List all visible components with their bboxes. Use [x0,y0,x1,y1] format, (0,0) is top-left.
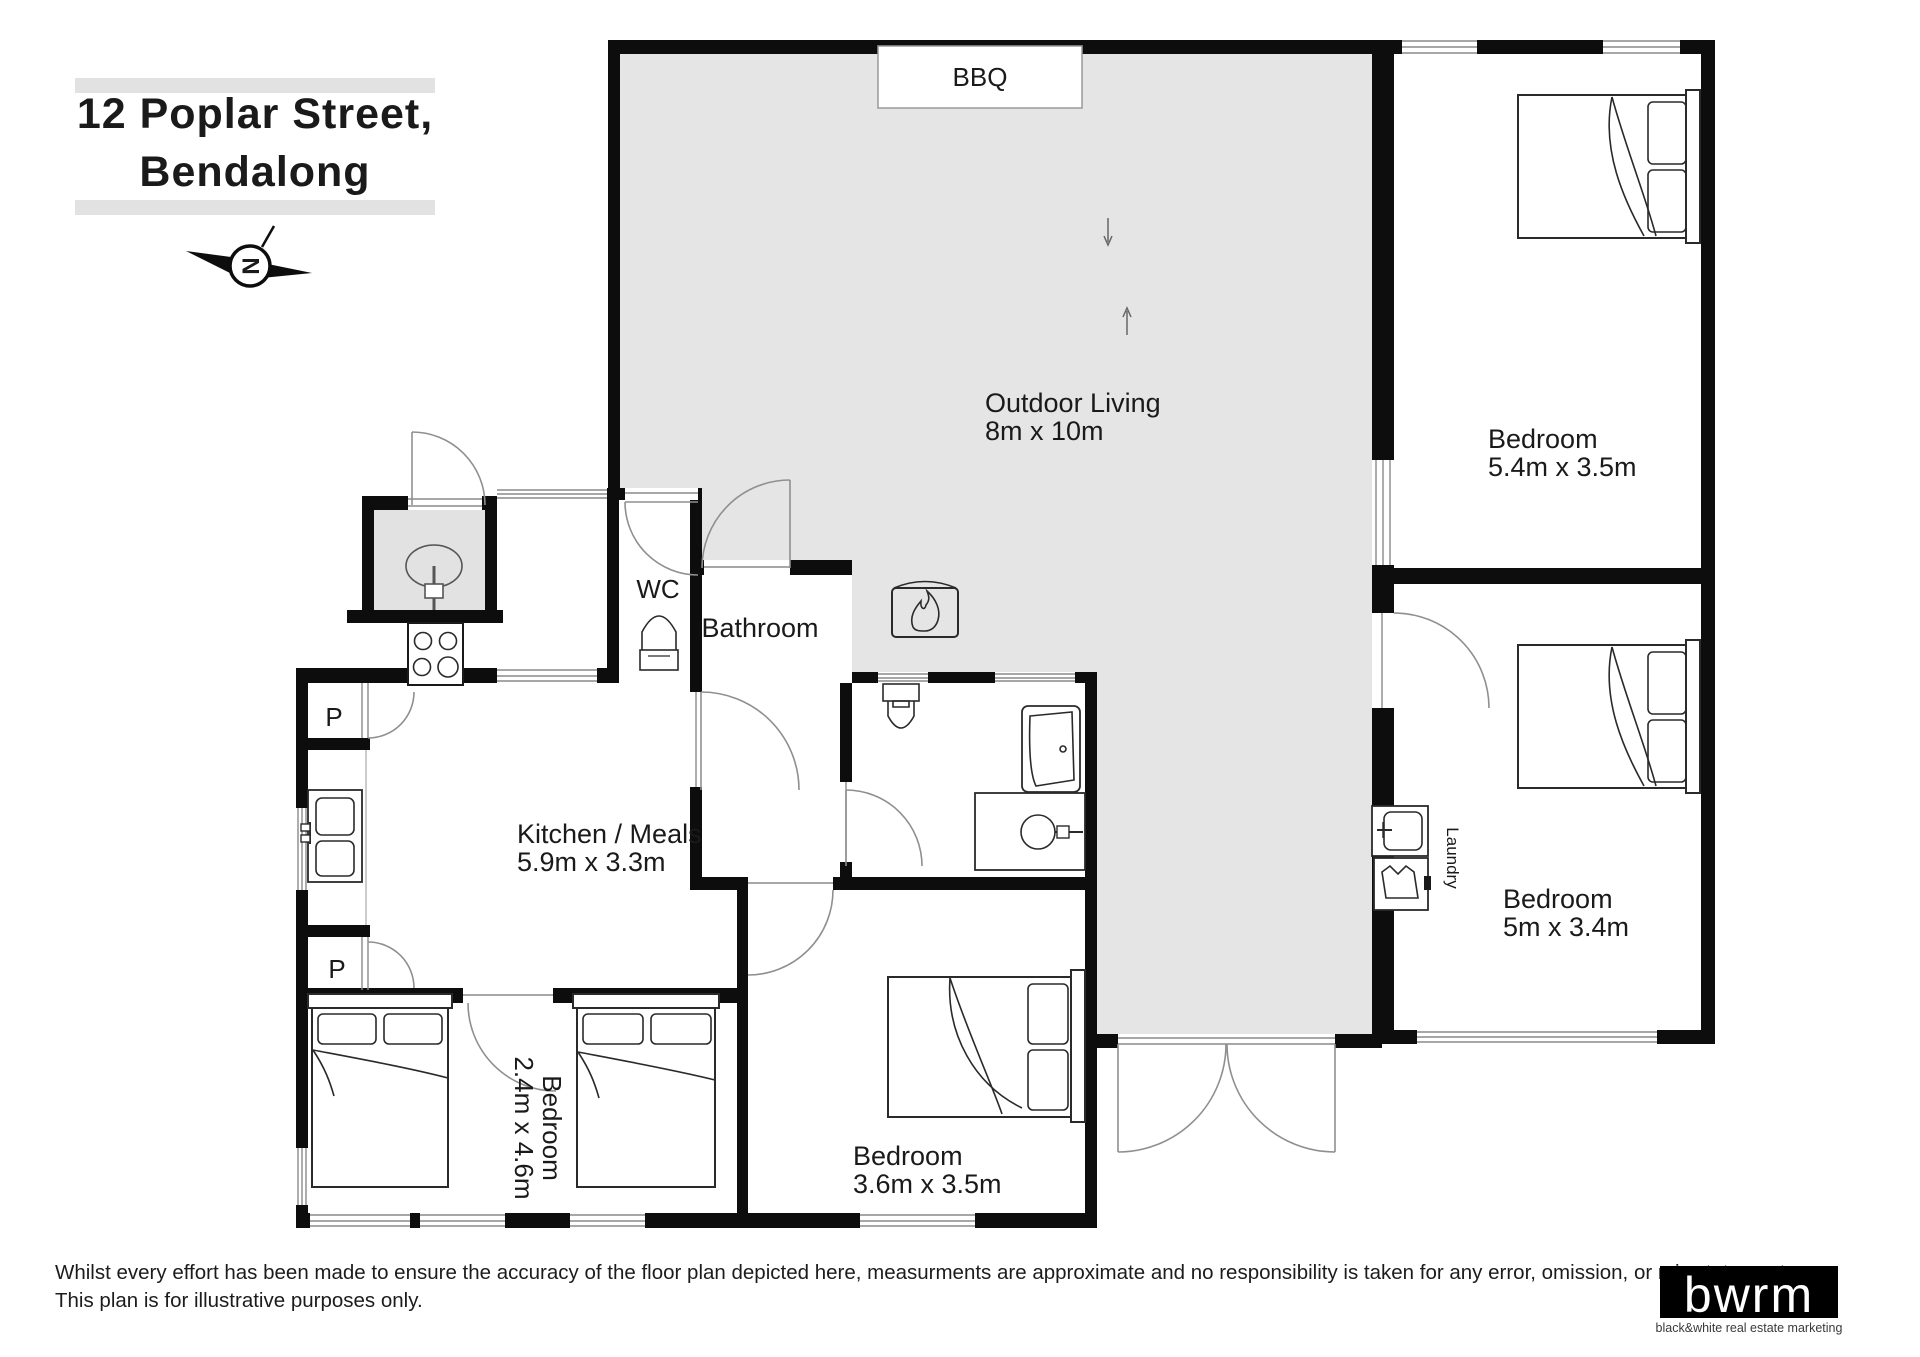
french-doors [1118,1044,1335,1152]
washing-machine-icon [1374,858,1431,910]
door-opening [1372,613,1394,708]
window [1603,40,1680,54]
wall-segment [485,510,497,617]
wall-segment [737,877,748,1228]
bed-right [1518,640,1700,793]
bed-middle [888,970,1085,1122]
closet-door-track [362,683,368,738]
title-line1: 12 Poplar Street, [77,90,433,138]
floor-plan-page: BBQ [0,0,1920,1357]
wc-label: WC [636,574,679,604]
door-opening [463,988,553,1003]
window [420,1213,505,1228]
title-bar-bottom [75,200,435,215]
compass-north-label: N [237,257,264,274]
bathroom-label: Bathroom [701,613,818,643]
kitchen-dims: 5.9m x 3.3m [517,847,666,877]
wall-segment [1382,568,1715,584]
door-opening [748,877,833,890]
wall-segment [480,496,497,510]
window [1417,1030,1657,1044]
pantry-top-door [368,692,414,738]
bedroom-middle-dims: 3.6m x 3.5m [853,1169,1002,1199]
window [995,672,1075,683]
bwrm-logo: bwrm black&white real estate marketing [1656,1266,1843,1335]
bbq-label: BBQ [953,62,1008,92]
logo-tagline: black&white real estate marketing [1656,1321,1843,1335]
laundry-tub-icon [1372,806,1428,856]
title-line2: Bendalong [139,148,370,196]
pantry-top-label: P [325,702,342,732]
window [570,1213,645,1228]
fire-pit-icon [892,582,958,638]
disclaimer-line1: Whilst every effort has been made to ens… [55,1261,1791,1284]
kitchen-sink-icon [301,750,366,925]
stove-icon [408,623,463,685]
bedroom-middle-label: Bedroom [853,1141,963,1171]
window [1372,460,1394,565]
bedroom-left-label: Bedroom [537,1075,567,1181]
pantry-bottom-label: P [328,954,345,984]
wc-door [625,502,698,575]
wall-segment [608,54,620,488]
vanity-sink-icon [975,793,1085,870]
closet-door-track [362,937,368,990]
wall-segment [607,500,619,683]
bedroom-right-dims: 5m x 3.4m [1503,912,1629,942]
title-block: 12 Poplar Street, Bendalong [75,78,435,215]
wall-segment [608,40,1715,54]
pantry-bottom-door [368,942,414,988]
outdoor-living-label: Outdoor Living [985,388,1161,418]
laundry-label: Laundry [1443,827,1462,889]
bedroom-right-label: Bedroom [1503,884,1613,914]
wall-segment [362,510,374,623]
window [860,1213,975,1228]
wall-segment [347,610,503,623]
wall-segment [690,575,702,692]
window [497,488,607,500]
bedroom-top-right-dims: 5.4m x 3.5m [1488,452,1637,482]
wall-segment [833,877,1097,890]
door-opening [625,488,698,500]
bed-bottom-left-a [308,994,452,1187]
bedroom-top-right-label: Bedroom [1488,424,1598,454]
door-opening [408,496,482,510]
wc-toilet-icon [640,616,678,670]
window [497,668,597,683]
wall-segment [840,683,852,782]
bedroom-left-label-group: Bedroom 2.4m x 4.6m [509,1056,567,1199]
outdoor-living-dims: 8m x 10m [985,416,1104,446]
wall-segment [362,496,408,510]
wall-segment [296,925,370,937]
window [1402,40,1477,54]
floor-plan-svg: BBQ [0,0,1920,1357]
door-opening [704,560,790,575]
wall-segment [296,1213,1097,1228]
wall-segment [1085,672,1097,1228]
bed-bottom-left-b [573,994,719,1187]
wall-segment [790,560,852,575]
window [296,1148,308,1205]
compass-icon: N [186,226,312,286]
window [878,672,928,683]
right-bedroom-door [1394,613,1489,708]
window [296,808,308,890]
bathroom-toilet-icon [883,684,919,728]
wall-segment [296,738,370,750]
bedroom-left-dims: 2.4m x 4.6m [509,1056,539,1199]
entry-door [412,432,485,505]
window [310,1213,410,1228]
logo-brand: bwrm [1684,1267,1814,1323]
bed-top-right [1518,90,1700,243]
bathroom-door [846,790,922,866]
hall-door [701,692,799,790]
disclaimer-line2: This plan is for illustrative purposes o… [55,1289,423,1312]
middle-bedroom-door [748,890,833,975]
wall-segment [1701,40,1715,1044]
bbq-box: BBQ [878,46,1082,108]
bathtub-icon [1022,706,1080,792]
footer: Whilst every effort has been made to ens… [55,1261,1842,1335]
wall-segment [296,668,308,1228]
kitchen-label: Kitchen / Meals [517,819,702,849]
